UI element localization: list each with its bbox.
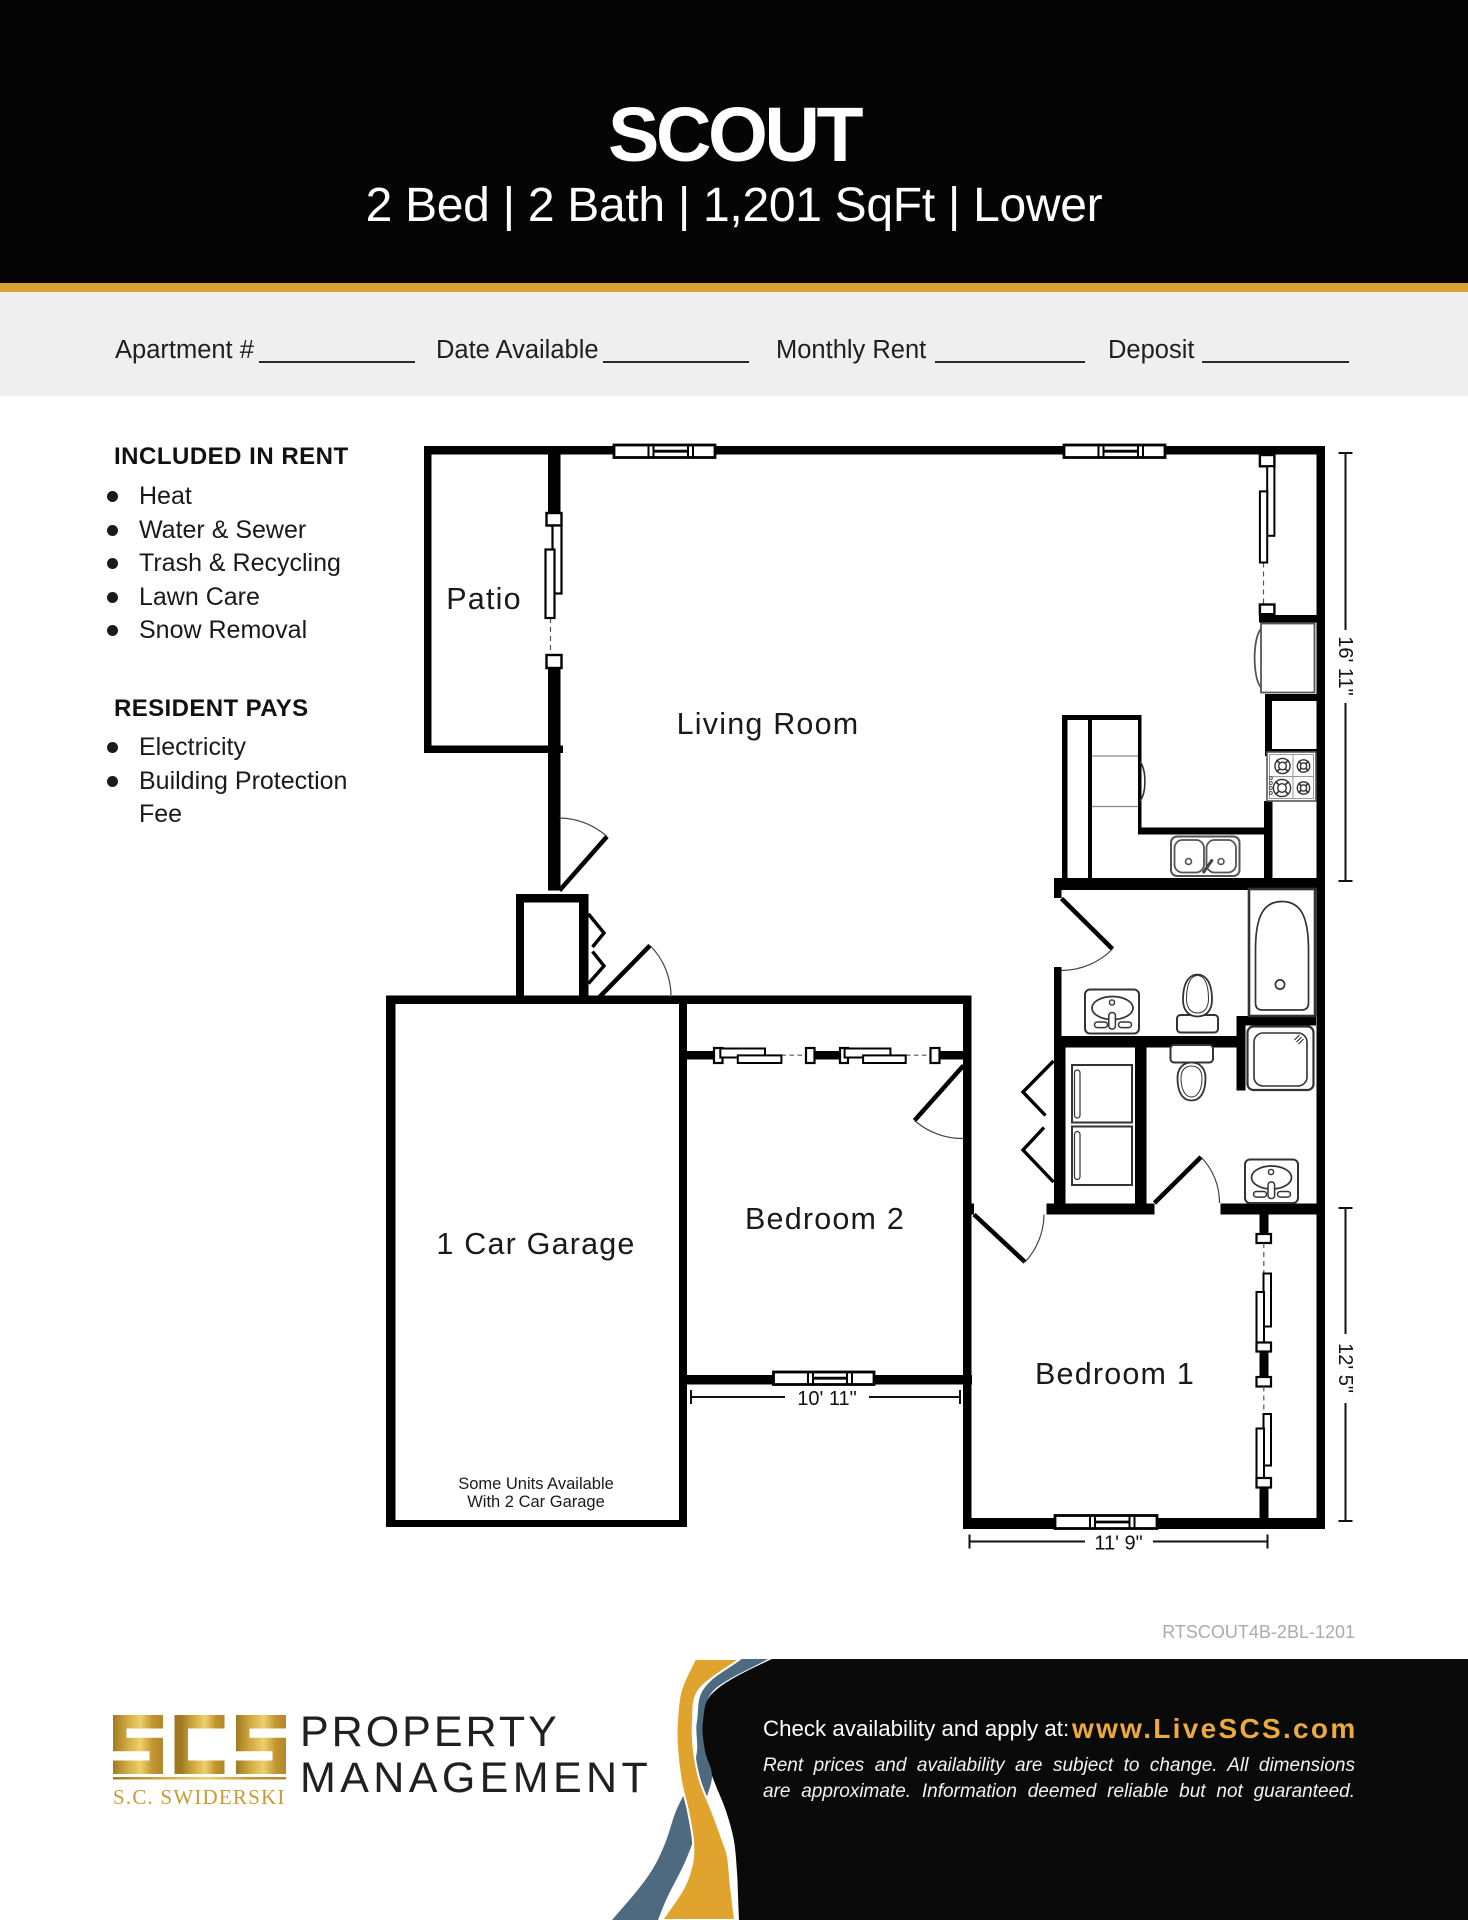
svg-text:16' 11": 16' 11" [1334,636,1356,695]
svg-text:1 Car Garage: 1 Car Garage [436,1227,635,1261]
svg-text:10' 11": 10' 11" [797,1388,856,1410]
svg-text:PROPERTY: PROPERTY [300,1708,560,1756]
svg-text:11' 9": 11' 9" [1094,1533,1142,1555]
svg-text:With 2 Car Garage: With 2 Car Garage [467,1493,605,1511]
svg-text:Some Units Available: Some Units Available [458,1475,614,1493]
svg-text:MANAGEMENT: MANAGEMENT [300,1754,652,1802]
svg-text:Living Room: Living Room [677,707,860,741]
svg-text:Bedroom 1: Bedroom 1 [1035,1357,1195,1391]
svg-text:Patio: Patio [446,582,522,616]
svg-text:S.C. SWIDERSKI: S.C. SWIDERSKI [113,1785,286,1809]
svg-text:12' 5": 12' 5" [1334,1343,1356,1393]
svg-text:Bedroom 2: Bedroom 2 [745,1202,905,1236]
